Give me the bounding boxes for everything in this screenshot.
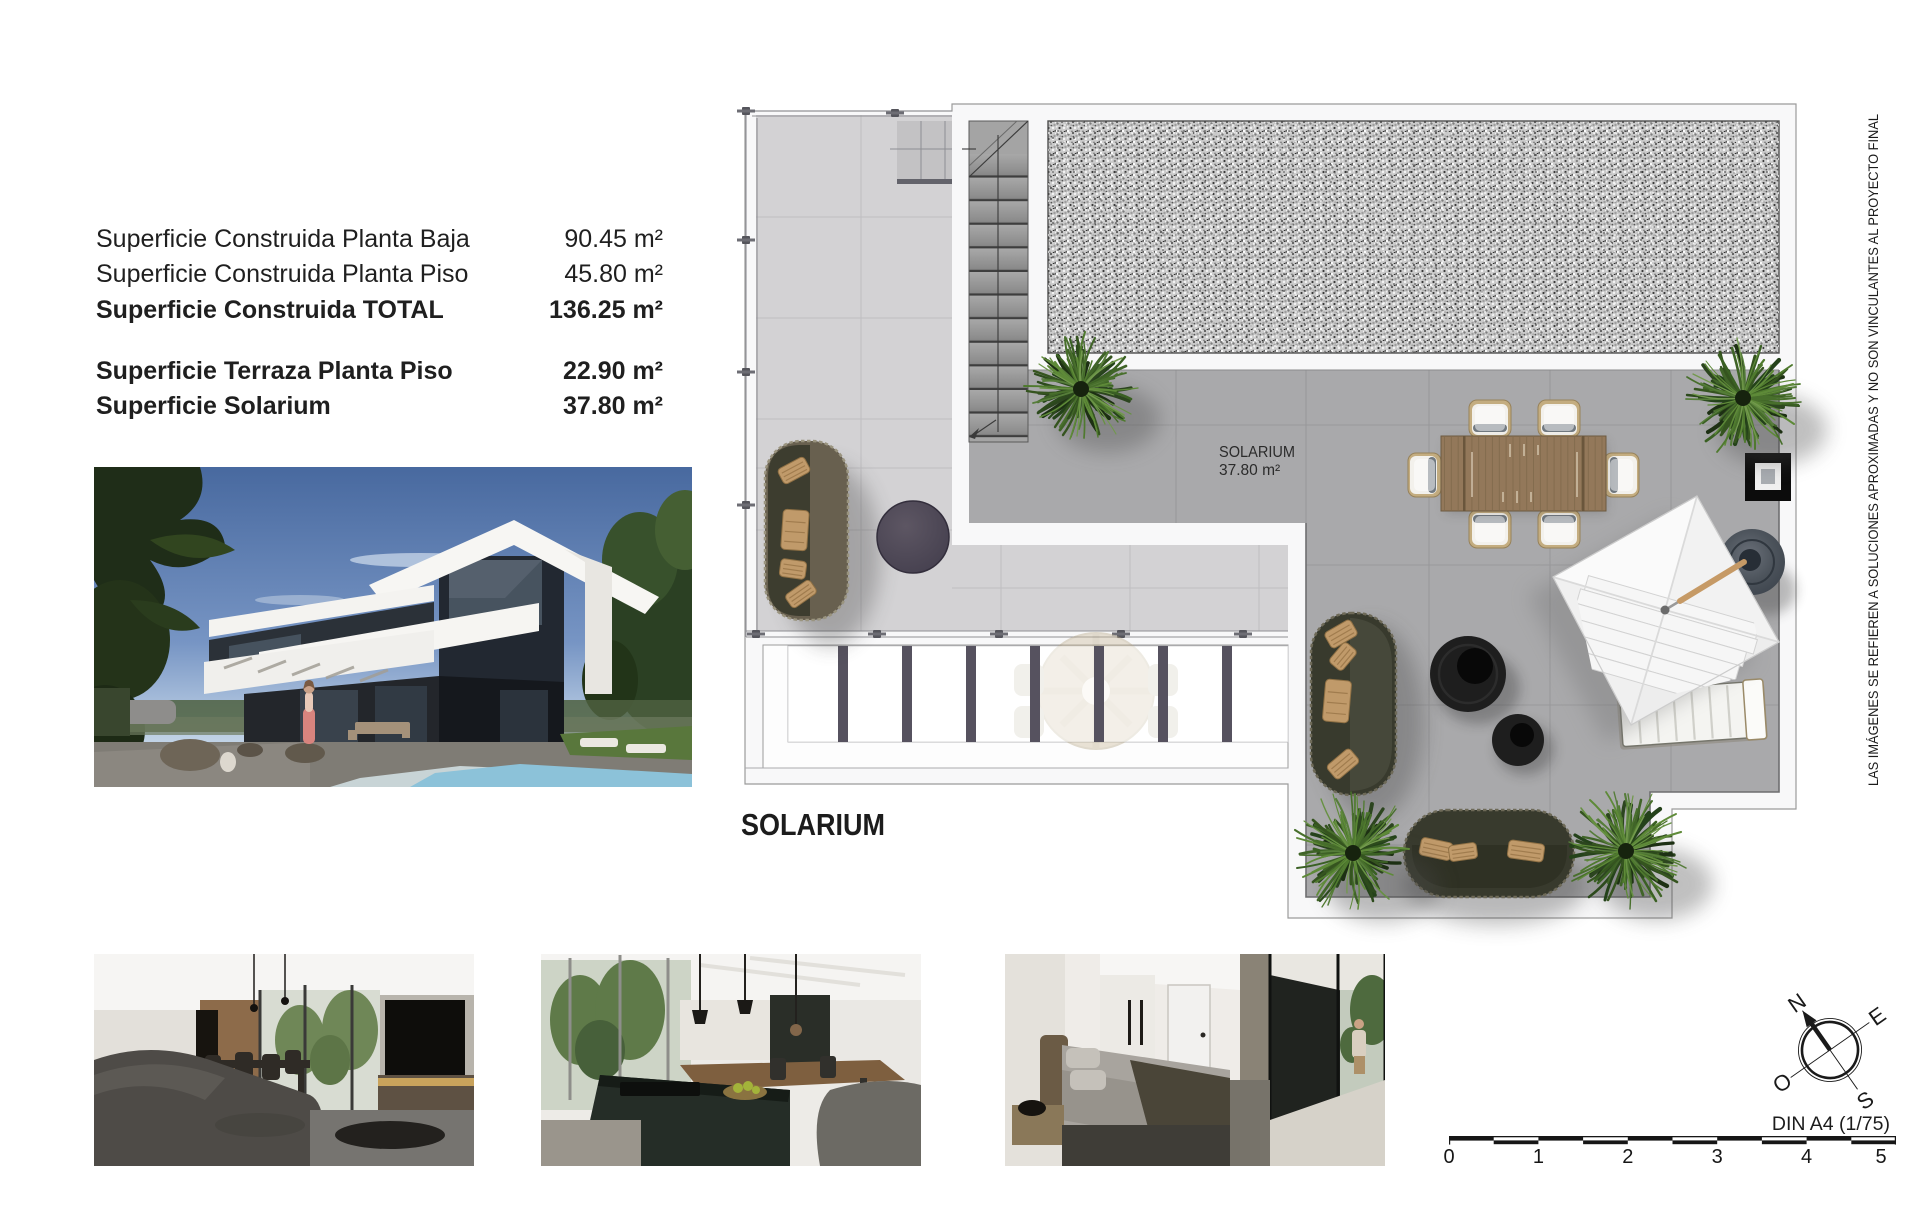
svg-text:SOLARIUM: SOLARIUM bbox=[1219, 444, 1295, 461]
svg-text:136.25 m²: 136.25 m² bbox=[549, 296, 663, 324]
svg-text:DIN A4 (1/75): DIN A4 (1/75) bbox=[1772, 1113, 1890, 1135]
svg-text:Superficie Solarium: Superficie Solarium bbox=[96, 392, 331, 420]
svg-text:0: 0 bbox=[1443, 1146, 1454, 1168]
svg-text:2: 2 bbox=[1622, 1146, 1633, 1168]
svg-text:5: 5 bbox=[1875, 1146, 1886, 1168]
svg-text:90.45 m²: 90.45 m² bbox=[564, 225, 663, 253]
svg-text:22.90 m²: 22.90 m² bbox=[563, 357, 663, 385]
svg-text:45.80 m²: 45.80 m² bbox=[564, 260, 663, 288]
svg-text:1: 1 bbox=[1533, 1146, 1544, 1168]
svg-text:SOLARIUM: SOLARIUM bbox=[741, 807, 885, 842]
svg-text:4: 4 bbox=[1801, 1146, 1812, 1168]
svg-text:37.80 m²: 37.80 m² bbox=[1219, 462, 1280, 479]
svg-text:Superficie Construida Planta B: Superficie Construida Planta Baja bbox=[96, 225, 470, 253]
svg-text:3: 3 bbox=[1712, 1146, 1723, 1168]
svg-text:Superficie Terraza Planta Piso: Superficie Terraza Planta Piso bbox=[96, 357, 453, 385]
svg-text:Superficie Construida Planta P: Superficie Construida Planta Piso bbox=[96, 260, 468, 288]
svg-text:Superficie Construida TOTAL: Superficie Construida TOTAL bbox=[96, 296, 444, 324]
svg-text:LAS IMÁGENES SE REFIEREN A SOL: LAS IMÁGENES SE REFIEREN A SOLUCIONES AP… bbox=[1866, 114, 1881, 786]
svg-text:37.80 m²: 37.80 m² bbox=[563, 392, 663, 420]
